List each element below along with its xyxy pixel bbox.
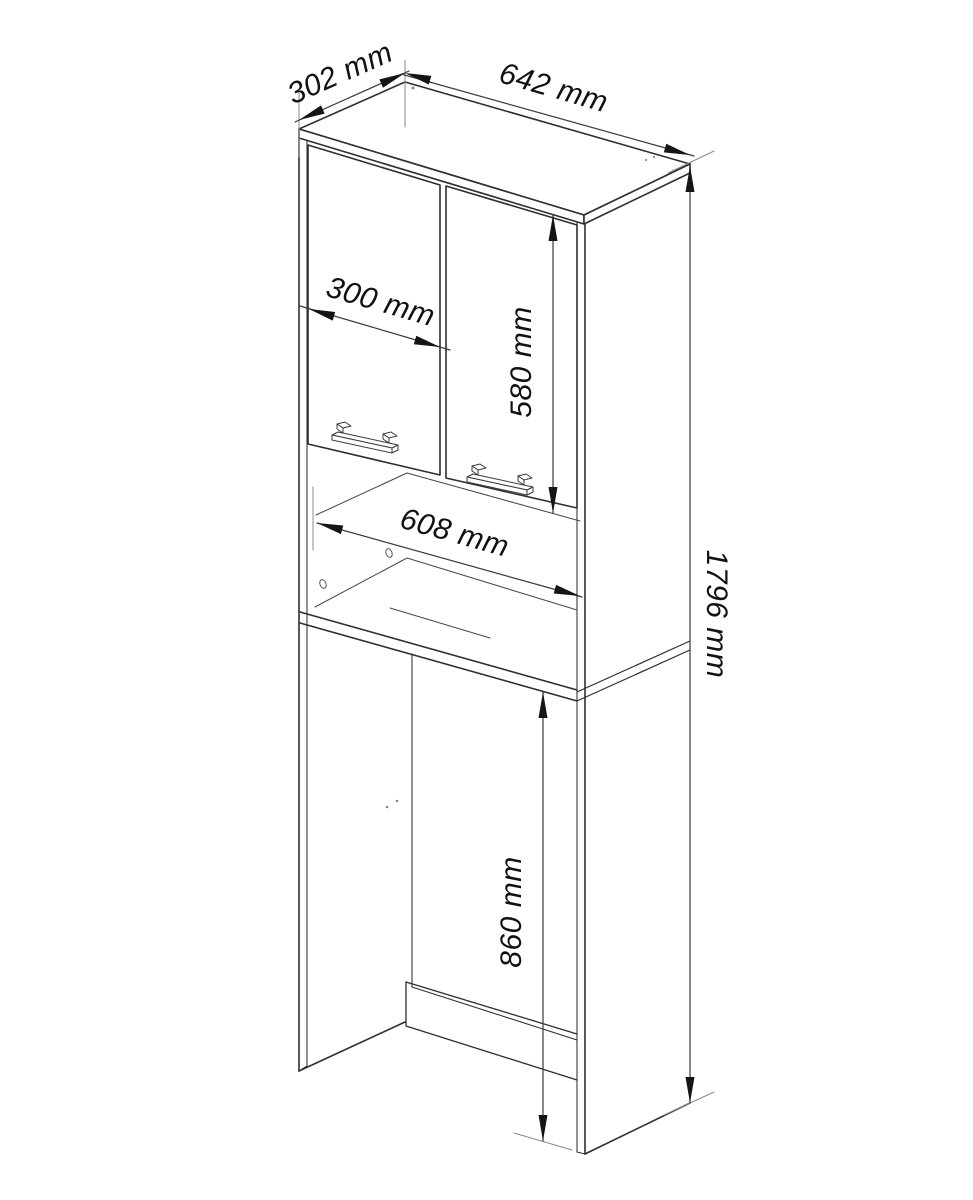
niche-floor-inner-edge bbox=[390, 608, 490, 638]
dimension-total-height: 1796 mm bbox=[664, 151, 733, 1115]
plinth-rail bbox=[406, 982, 577, 1080]
dim-label-door-height: 580 mm bbox=[505, 306, 538, 417]
technical-drawing-canvas: 302 mm 642 mm 300 mm 580 mm bbox=[0, 0, 973, 1200]
dim-label-total-height: 1796 mm bbox=[700, 550, 733, 679]
dim-label-opening-height: 860 mm bbox=[495, 856, 528, 967]
arrowhead bbox=[554, 585, 580, 596]
dimension-niche-width: 608 mm bbox=[313, 487, 582, 597]
arrowhead bbox=[539, 1115, 548, 1141]
niche-floor-back-edge bbox=[407, 558, 577, 610]
arrowhead bbox=[317, 523, 343, 534]
arrowhead bbox=[686, 1077, 695, 1103]
bottom-shelf-board bbox=[300, 612, 577, 701]
arrowhead bbox=[664, 144, 690, 155]
dim-label-top-width: 642 mm bbox=[496, 57, 612, 119]
dimension-opening-height: 860 mm bbox=[495, 692, 572, 1150]
right-face-shelf-line-bottom bbox=[577, 650, 690, 701]
right-side-panel bbox=[577, 222, 690, 1154]
niche-floor-left-edge bbox=[315, 558, 407, 607]
dim-label-niche-width: 608 mm bbox=[396, 502, 512, 564]
right-face-shelf-line-top bbox=[577, 641, 690, 692]
shelf-pin-hole bbox=[319, 579, 328, 590]
arrowhead bbox=[539, 692, 548, 718]
shelf-pin-hole bbox=[385, 548, 394, 559]
cabinet-outline bbox=[299, 82, 690, 1154]
drawing-page: 302 mm 642 mm 300 mm 580 mm bbox=[0, 0, 973, 1200]
niche-ceiling-left-edge bbox=[316, 473, 407, 515]
